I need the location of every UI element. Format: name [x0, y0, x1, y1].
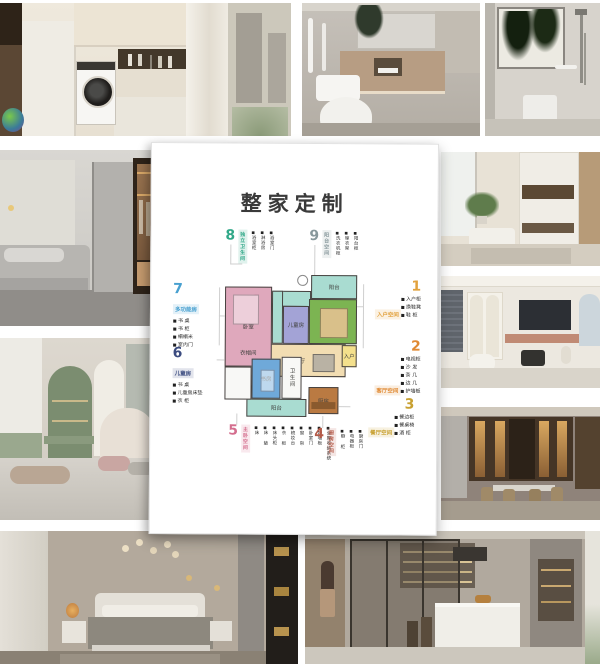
room-utility [224, 366, 251, 399]
tv-console [505, 334, 587, 343]
pendant-light [186, 575, 192, 581]
floor [305, 647, 585, 664]
lit-item [274, 547, 289, 556]
legend-item: 厨房门 [357, 429, 363, 449]
legend-number: 7 [173, 283, 199, 296]
curtain [186, 3, 228, 136]
legend-number: 1 [365, 280, 421, 293]
window-city-view [228, 3, 291, 136]
bedside-lamp-glow [66, 603, 79, 618]
arch-bookshelf [467, 292, 503, 360]
legend-item: 卧室门 [307, 426, 313, 461]
island-counter [435, 603, 520, 649]
compass-icon [297, 275, 308, 286]
room-name: 阳台 [271, 404, 282, 412]
legend-item: 阳台柜 [352, 231, 358, 256]
photo-bathroom [302, 3, 480, 136]
room-name: 儿童房 [288, 321, 305, 329]
photo-living-tv [441, 276, 600, 388]
wall-plant [354, 5, 384, 39]
legend-number: 3 [358, 398, 414, 411]
hanging-clothes [139, 200, 143, 234]
shelf [52, 420, 88, 422]
legend-heading: 厨房空间 [327, 428, 336, 456]
legend-heading: 多功能房 [173, 304, 199, 314]
tall-cabinet [519, 152, 579, 246]
towel [378, 68, 398, 73]
legend-heading: 餐厅空间 [368, 427, 394, 437]
tall-cabinet [530, 539, 582, 647]
legend-item: 沙 发 [401, 364, 421, 372]
grab-bar [322, 23, 326, 71]
legend-7-multifunction: 7多功能房书 桌书 柜榻榻米室内门 [173, 283, 199, 349]
dining-table-symbol [313, 354, 335, 372]
door-panel [22, 21, 76, 136]
window-palm [497, 7, 565, 69]
sofa-table-symbol [320, 308, 348, 338]
lit-shelf-column [539, 421, 549, 477]
room-entry: 入户 [342, 345, 357, 367]
legend-3-dining: 3餐厅空间餐边柜餐桌椅酒 柜 [358, 398, 414, 438]
room-name: 衣帽间 [240, 348, 257, 356]
legend-item: 电视柜 [401, 356, 421, 364]
rug [471, 248, 571, 264]
legend-item: 橱 柜 [339, 429, 345, 449]
legend-item: 洗衣机柜 [334, 231, 340, 256]
room-balcony-top: 阳台 [311, 275, 357, 299]
connector-line [357, 306, 364, 307]
shower-hose [584, 33, 586, 85]
upper-cabinet [74, 3, 186, 47]
nightstand [62, 621, 86, 643]
floor [0, 290, 160, 326]
legend-heading: 独立卫生间 [238, 230, 247, 264]
plant [465, 192, 499, 218]
bed-symbol [233, 295, 259, 325]
washer-panel [77, 62, 115, 70]
photo-living-cabinet [441, 152, 600, 266]
legend-number: 8 [225, 229, 235, 242]
legend-item: 电器柜 [348, 429, 354, 449]
legend-item: 晾衣架 [343, 231, 349, 256]
room-kids: 儿童房 [283, 306, 309, 344]
room-name: 卫生间 [288, 368, 296, 388]
arch [486, 295, 499, 357]
pillows [4, 248, 64, 262]
wood-column [575, 417, 600, 489]
rug [60, 654, 220, 664]
legend-item: 茶 几 [400, 372, 420, 380]
grab-bar [555, 65, 577, 69]
towel-niche [374, 58, 402, 76]
room-kitchen: 厨房 [308, 387, 338, 414]
photo-wardrobe-bedroom [0, 150, 160, 326]
chandelier-globe [122, 545, 129, 552]
legend-item: 入户柜 [401, 296, 421, 304]
lit-shelf-column [475, 421, 485, 477]
shower-bar [580, 11, 583, 83]
sliding-door [92, 162, 134, 292]
fur-throw [10, 466, 70, 484]
arch-window [579, 294, 600, 346]
legend-9-balcony: 9阳台空间洗衣机柜晾衣架阳台柜 [309, 230, 358, 258]
legend-item: 鞋 柜 [401, 312, 421, 320]
floor [485, 119, 600, 136]
lit-shelf [541, 569, 571, 571]
legend-items: 书 桌儿童房床垫衣 柜 [172, 381, 202, 405]
collage-poster: 整家定制 8独立卫生间浴室柜淋浴房浴室门 9阳台空间洗衣机柜晾衣架阳台柜 7多功… [0, 0, 600, 664]
legend-item: 浴室柜 [250, 231, 256, 251]
washer [76, 61, 116, 125]
legend-item: 护墙板 [400, 388, 420, 396]
legend-item: 淋浴房 [259, 231, 265, 251]
mirror-wardrobe [238, 531, 264, 657]
arch-niche [48, 366, 92, 458]
legend-number: 6 [173, 347, 203, 360]
window [441, 416, 467, 498]
shower-head [575, 9, 587, 15]
toy-bear [2, 108, 24, 132]
woman-coat [320, 589, 335, 617]
legend-number: 4 [314, 428, 324, 441]
cornice [441, 276, 600, 287]
dark-center-panel [509, 419, 535, 479]
faucet [150, 55, 152, 69]
ceiling [441, 407, 600, 416]
legend-6-kids-room: 6儿童房书 桌儿童房床垫衣 柜 [172, 347, 202, 405]
photo-shower-room [485, 3, 600, 136]
legend-items: 浴室柜淋浴房浴室门 [250, 231, 274, 251]
lit-shelf-column [557, 421, 567, 477]
pillows [102, 605, 198, 617]
wood-niche [522, 185, 574, 199]
counter [114, 69, 190, 97]
wood-niche [522, 223, 574, 233]
island-deco [475, 595, 491, 603]
building [236, 13, 262, 103]
legend-item: 衣 柜 [172, 397, 202, 405]
dining-table [493, 485, 555, 491]
photo-green-bedroom [0, 338, 160, 520]
floor [302, 123, 480, 136]
photo-master-bedroom [0, 531, 298, 664]
connector-line [230, 263, 242, 264]
left-wall [485, 3, 495, 136]
sink-cabinet [114, 97, 190, 136]
legend-item: 床 [253, 426, 259, 461]
legend-heading: 入户空间 [375, 309, 401, 319]
room-living: 客厅 [309, 299, 357, 344]
legend-items: 橱 柜电器柜厨房门 [339, 429, 363, 449]
legend-item: 书 桌 [173, 317, 199, 325]
legend-item: 床头柜 [271, 426, 277, 461]
poster-card: 整家定制 8独立卫生间浴室柜淋浴房浴室门 9阳台空间洗衣机柜晾衣架阳台柜 7多功… [149, 142, 439, 536]
shelf [52, 400, 88, 402]
carpet [441, 368, 600, 388]
legend-heading: 客厅空间 [374, 385, 400, 395]
room-balcony-bottom: 阳台 [246, 399, 306, 417]
room-bathroom-bottom: 卫生间 [281, 357, 301, 399]
legend-items: 入户柜换鞋凳鞋 柜 [401, 296, 421, 320]
legend-8-bathroom: 8独立卫生间浴室柜淋浴房浴室门 [225, 229, 274, 263]
room-bathroom-top-col [272, 291, 283, 344]
tv-screen [519, 300, 571, 330]
grab-bar [308, 18, 313, 73]
range-hood [453, 547, 487, 561]
legend-item: 衣 柜 [280, 426, 286, 461]
back-cabinet [469, 417, 573, 481]
nightstand [210, 621, 232, 641]
floor-plan: 阳台 餐厅 卧室 衣帽间 儿童房 客厅 入户 书房 卫生间 厨房 阳台 [220, 265, 365, 422]
dark-corner [0, 3, 22, 45]
connector-line [217, 359, 225, 360]
legend-number: 2 [365, 340, 421, 353]
building [268, 33, 286, 103]
legend-2-living: 2客厅空间电视柜沙 发茶 几边 几护墙板 [364, 340, 420, 396]
legend-item: 榻榻米 [173, 333, 199, 341]
legend-item: 换鞋凳 [401, 304, 421, 312]
legend-item: 窗 帘 [298, 426, 304, 461]
woman-silhouette [321, 561, 334, 591]
lit-shelf-column [495, 421, 505, 477]
connector-line [219, 315, 225, 316]
connector-line [338, 406, 350, 407]
legend-item: 浴室门 [268, 231, 274, 251]
coffee-table [521, 350, 545, 366]
open-shelves [538, 559, 574, 621]
desk [44, 436, 100, 444]
bar-stool [421, 617, 432, 647]
washer-drum [82, 76, 114, 108]
carpet [441, 501, 600, 520]
photo-kitchen [305, 531, 600, 664]
vase [561, 346, 571, 364]
desk-symbol [260, 370, 274, 392]
legend-items: 电视柜沙 发茶 几边 几护墙板 [400, 356, 420, 396]
greenery [232, 107, 288, 136]
room-study: 书房 [251, 359, 280, 399]
legend-item: 书 柜 [173, 325, 199, 333]
chandelier [122, 535, 180, 559]
legend-item: 儿童房床垫 [172, 389, 202, 397]
legend-item: 床 垫 [262, 426, 268, 461]
legend-item: 餐边柜 [394, 413, 414, 421]
legend-heading: 主卧空间 [241, 425, 250, 453]
pillow-pink [98, 456, 130, 471]
headboard [100, 408, 155, 460]
counter-symbol [311, 402, 335, 409]
legend-heading: 阳台空间 [322, 230, 331, 258]
legend-items: 洗衣机柜晾衣架阳台柜 [334, 231, 358, 256]
plant-pot [477, 216, 487, 224]
room-name: 阳台 [329, 283, 340, 291]
legend-item: 边 几 [400, 380, 420, 388]
window [585, 531, 600, 664]
legend-item: 餐桌椅 [394, 421, 414, 429]
mullion [386, 541, 388, 652]
bottles [128, 54, 132, 66]
dark-shelf-column [266, 531, 298, 664]
legend-number: 9 [309, 230, 319, 243]
legend-number: 5 [228, 424, 238, 437]
room-name: 入户 [344, 352, 355, 360]
wall-sconce [8, 205, 14, 211]
arch [470, 295, 483, 357]
legend-1-entry: 1入户空间入户柜换鞋凳鞋 柜 [365, 280, 421, 320]
photo-dining-room [441, 407, 600, 520]
legend-4-kitchen: 4厨房空间橱 柜电器柜厨房门 [314, 428, 363, 456]
poster-title: 整家定制 [152, 187, 438, 219]
legend-items: 餐边柜餐桌椅酒 柜 [394, 413, 414, 437]
sheer-window [0, 531, 48, 657]
legend-item: 书 桌 [172, 381, 202, 389]
palm-plant [529, 9, 561, 53]
blind-window [441, 290, 463, 352]
legend-item: 酒 柜 [394, 429, 414, 437]
photo-laundry-room [0, 3, 291, 136]
legend-heading: 儿童房 [173, 368, 194, 378]
legend-item: 梳妆台 [289, 426, 295, 461]
ceiling [302, 3, 480, 11]
